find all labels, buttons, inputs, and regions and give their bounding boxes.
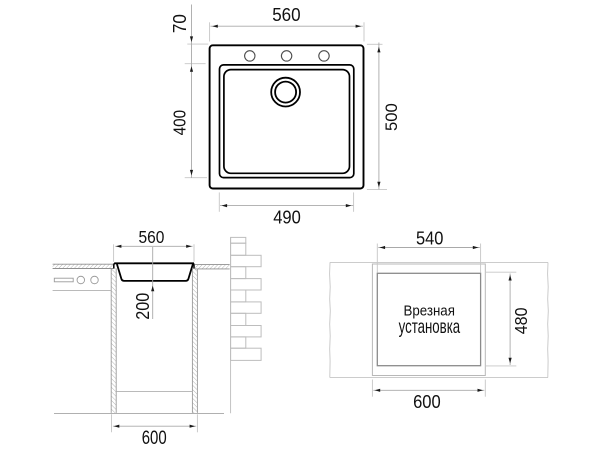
svg-text:560: 560 bbox=[138, 227, 164, 247]
svg-text:540: 540 bbox=[416, 228, 443, 249]
svg-text:560: 560 bbox=[272, 5, 300, 25]
svg-text:200: 200 bbox=[133, 293, 153, 320]
svg-text:600: 600 bbox=[413, 392, 441, 412]
svg-text:установка: установка bbox=[399, 316, 461, 338]
svg-text:400: 400 bbox=[170, 110, 190, 136]
svg-text:70: 70 bbox=[170, 14, 190, 33]
svg-text:600: 600 bbox=[142, 427, 167, 449]
svg-text:500: 500 bbox=[382, 103, 401, 131]
svg-text:490: 490 bbox=[273, 207, 301, 227]
svg-text:480: 480 bbox=[511, 307, 531, 334]
